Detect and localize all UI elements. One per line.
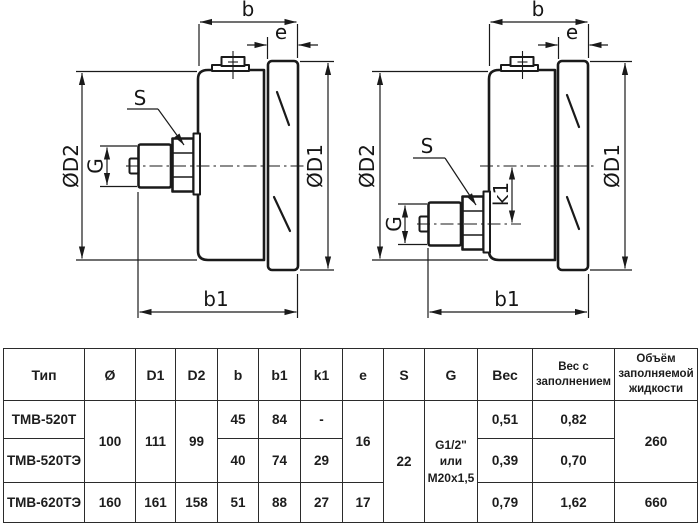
spec-table: Тип Ø D1 D2 b b1 k1 e S G Вес Вес с запо… bbox=[3, 348, 698, 523]
dim-label-e: e bbox=[566, 20, 578, 44]
cell-d1-row3: 161 bbox=[136, 483, 176, 523]
right-drawing: b e S ØD2 G k1 ØD1 b1 bbox=[355, 0, 632, 318]
page: b e S ØD2 G ØD1 b1 bbox=[0, 0, 700, 528]
cell-volume-merged: 260 bbox=[615, 401, 698, 483]
cell-d2-merged: 99 bbox=[176, 401, 218, 483]
cell-weight-filled-row2: 0,70 bbox=[533, 439, 615, 483]
col-header-g: G bbox=[425, 349, 478, 401]
cell-diameter-merged: 100 bbox=[85, 401, 136, 483]
dim-label-d2: ØD2 bbox=[355, 144, 379, 188]
cell-b-row1: 45 bbox=[218, 401, 259, 439]
col-header-diameter: Ø bbox=[85, 349, 136, 401]
table-row: ТМВ-520Т 100 111 99 45 84 - 16 22 G1/2" … bbox=[4, 401, 698, 439]
header-row: Тип Ø D1 D2 b b1 k1 e S G Вес Вес с запо… bbox=[4, 349, 698, 401]
cell-d1-merged: 111 bbox=[136, 401, 176, 483]
cell-b-row2: 40 bbox=[218, 439, 259, 483]
dim-label-b: b bbox=[242, 0, 255, 21]
cell-weight-filled-row1: 0,82 bbox=[533, 401, 615, 439]
col-header-weight-filled: Вес с заполнением bbox=[533, 349, 615, 401]
flange bbox=[194, 134, 201, 195]
cell-volume-row3: 660 bbox=[615, 483, 698, 523]
cell-d2-row3: 158 bbox=[176, 483, 218, 523]
col-header-b: b bbox=[218, 349, 259, 401]
left-drawing: b e S ØD2 G ØD1 b1 bbox=[59, 0, 334, 318]
case-outline bbox=[489, 70, 555, 260]
dim-label-b1: b1 bbox=[494, 287, 519, 311]
table-row: ТМВ-620ТЭ 160 161 158 51 88 27 17 0,79 1… bbox=[4, 483, 698, 523]
cell-weight-filled-row3: 1,62 bbox=[533, 483, 615, 523]
dim-label-b: b bbox=[532, 0, 545, 21]
col-header-type: Тип bbox=[4, 349, 85, 401]
cell-e-merged: 16 bbox=[343, 401, 384, 483]
dim-label-d2: ØD2 bbox=[59, 144, 83, 188]
dim-label-k1: k1 bbox=[489, 182, 513, 206]
hex-nut bbox=[173, 139, 194, 192]
cell-k1-row1: - bbox=[301, 401, 343, 439]
cell-e-row3: 17 bbox=[343, 483, 384, 523]
cell-b-row3: 51 bbox=[218, 483, 259, 523]
cell-k1-row3: 27 bbox=[301, 483, 343, 523]
dim-label-d1: ØD1 bbox=[600, 144, 624, 188]
cell-b1-row1: 84 bbox=[259, 401, 301, 439]
dim-label-g: G bbox=[84, 158, 108, 174]
col-header-volume: Объём заполняемой жидкости bbox=[615, 349, 698, 401]
dim-label-e: e bbox=[275, 20, 287, 44]
col-header-s: S bbox=[384, 349, 425, 401]
hex-nut bbox=[463, 197, 484, 250]
col-header-d1: D1 bbox=[136, 349, 176, 401]
cell-type-row1: ТМВ-520Т bbox=[4, 401, 85, 439]
drawings-canvas: b e S ØD2 G ØD1 b1 bbox=[0, 0, 700, 347]
cell-weight-row2: 0,39 bbox=[478, 439, 533, 483]
col-header-e: e bbox=[343, 349, 384, 401]
cell-g-merged: G1/2" или M20x1,5 bbox=[425, 401, 478, 523]
cell-b1-row2: 74 bbox=[259, 439, 301, 483]
dim-label-g: G bbox=[382, 216, 406, 232]
col-header-b1: b1 bbox=[259, 349, 301, 401]
cell-b1-row3: 88 bbox=[259, 483, 301, 523]
col-header-d2: D2 bbox=[176, 349, 218, 401]
col-header-k1: k1 bbox=[301, 349, 343, 401]
dim-label-d1: ØD1 bbox=[303, 144, 327, 188]
s-label: S bbox=[421, 134, 434, 158]
dim-label-b1: b1 bbox=[203, 287, 228, 311]
cell-k1-row2: 29 bbox=[301, 439, 343, 483]
case-outline bbox=[198, 70, 264, 260]
cell-s-merged: 22 bbox=[384, 401, 425, 523]
col-header-weight: Вес bbox=[478, 349, 533, 401]
cell-weight-row3: 0,79 bbox=[478, 483, 533, 523]
s-label: S bbox=[134, 86, 147, 110]
cell-diameter-row3: 160 bbox=[85, 483, 136, 523]
cell-type-row2: ТМВ-520ТЭ bbox=[4, 439, 85, 483]
cell-weight-row1: 0,51 bbox=[478, 401, 533, 439]
cell-type-row3: ТМВ-620ТЭ bbox=[4, 483, 85, 523]
